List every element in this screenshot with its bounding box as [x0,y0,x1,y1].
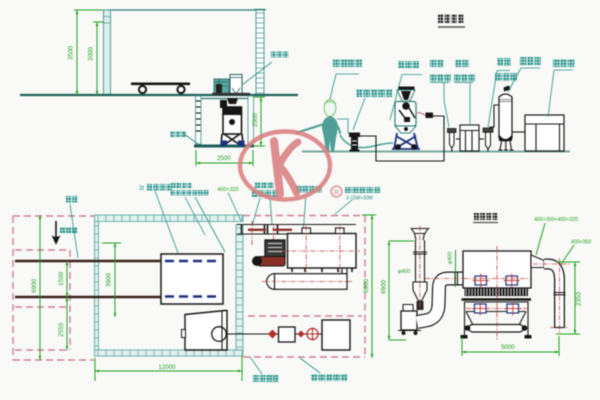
svg-text:400×320: 400×320 [217,187,238,193]
svg-text:1500: 1500 [58,272,65,286]
svg-text:6900: 6900 [31,279,38,293]
svg-text:400×300+400×320: 400×300+400×320 [534,217,578,223]
svg-text:2500: 2500 [217,155,231,162]
svg-text:3-15M×30M: 3-15M×30M [346,196,373,202]
svg-text:3900: 3900 [106,273,113,287]
svg-text:12000: 12000 [158,364,176,371]
svg-text:2550: 2550 [58,323,65,337]
svg-text:3500: 3500 [68,46,75,60]
svg-text:5000: 5000 [501,344,515,351]
svg-text:2000: 2000 [252,113,259,127]
svg-text:φ400: φ400 [398,269,411,275]
svg-text:φ400: φ400 [448,252,454,265]
svg-text:R: R [334,188,340,197]
svg-text:3000: 3000 [88,47,95,61]
svg-text:3t: 3t [139,186,144,192]
svg-text:400×350: 400×350 [571,240,591,246]
svg-text:6900: 6900 [381,280,388,294]
svg-text:6900: 6900 [363,279,370,293]
svg-text:2350: 2350 [576,292,583,306]
